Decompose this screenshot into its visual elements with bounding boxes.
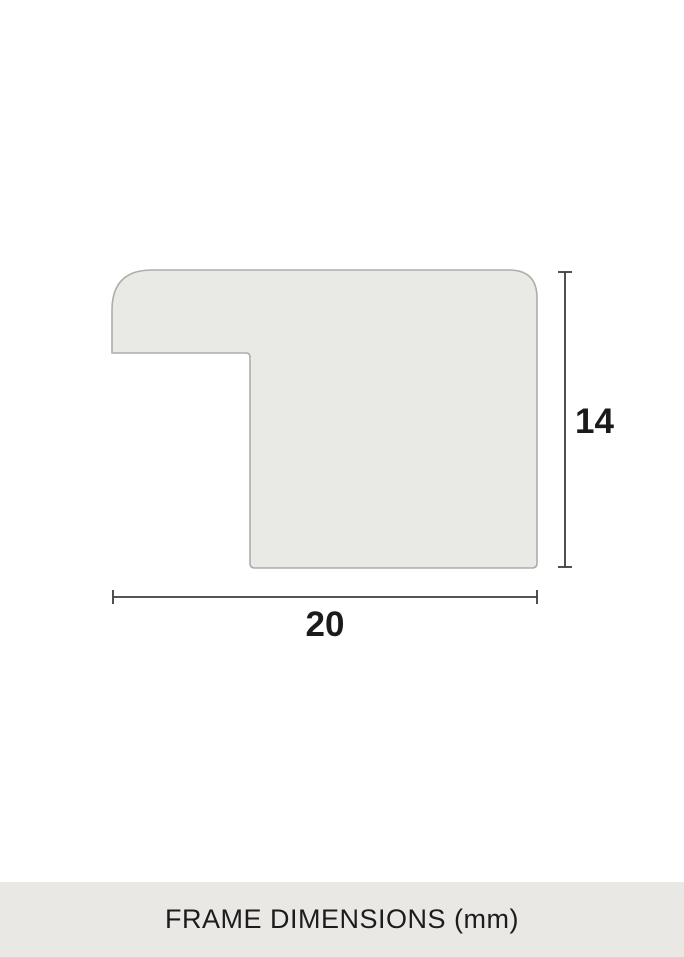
width-dimension-line bbox=[113, 590, 537, 604]
footer-bar: FRAME DIMENSIONS (mm) bbox=[0, 882, 684, 957]
height-dimension-label: 14 bbox=[575, 402, 614, 441]
frame-dimensions-page: 14 20 FRAME DIMENSIONS (mm) bbox=[0, 0, 684, 957]
frame-profile-diagram: 14 20 bbox=[0, 0, 684, 882]
height-dimension-line bbox=[558, 272, 572, 567]
frame-profile-shape bbox=[112, 270, 537, 568]
footer-caption: FRAME DIMENSIONS (mm) bbox=[165, 904, 519, 935]
width-dimension-label: 20 bbox=[306, 605, 345, 644]
